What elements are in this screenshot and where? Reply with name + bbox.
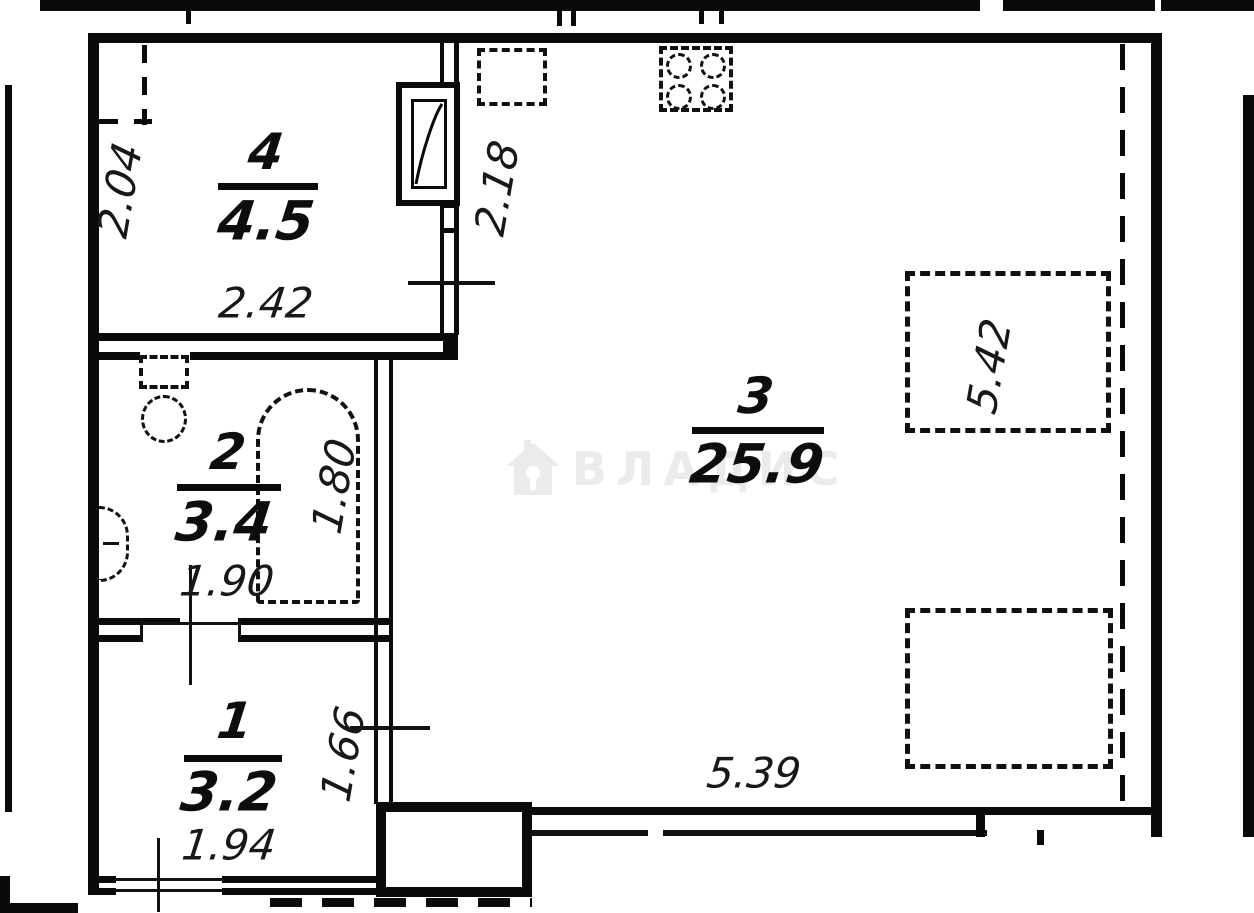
wall xyxy=(443,333,458,360)
room4-area: 4.5 xyxy=(214,190,317,253)
loggia-dashed-line xyxy=(1120,44,1125,802)
window xyxy=(530,807,1162,815)
room3-width-dim: 5.39 xyxy=(704,749,804,798)
wall xyxy=(88,352,140,360)
wall-tick xyxy=(186,11,191,24)
room3-wall-dim: 2.18 xyxy=(465,136,529,241)
window-mullion xyxy=(976,813,985,837)
wardrobe-icon xyxy=(142,45,147,125)
wall xyxy=(88,333,458,341)
top-wall xyxy=(88,33,1160,43)
entrance-door-opening xyxy=(114,889,224,892)
right-wall xyxy=(1151,33,1162,837)
wall-tick xyxy=(557,11,562,26)
room2-number: 2 xyxy=(207,423,249,481)
room3-area: 25.9 xyxy=(687,433,828,496)
burner-icon xyxy=(700,84,726,110)
window xyxy=(530,830,648,836)
outer-wall xyxy=(0,903,78,913)
wall-tick xyxy=(571,11,576,26)
wall xyxy=(88,888,116,895)
wall-tick xyxy=(699,11,704,24)
room1-depth-dim: 1.66 xyxy=(311,702,375,807)
toilet-icon xyxy=(139,355,189,389)
wall xyxy=(88,635,142,642)
dimension-line xyxy=(157,838,160,912)
shaft xyxy=(376,802,532,897)
burner-icon xyxy=(666,84,692,110)
room2-width-dim: 1.90 xyxy=(177,557,277,606)
wall xyxy=(190,352,458,360)
wall xyxy=(389,352,393,804)
stove-icon xyxy=(659,46,733,112)
door-jamb xyxy=(238,618,241,642)
furniture-icon xyxy=(905,608,1113,769)
left-wall xyxy=(88,33,99,890)
wall xyxy=(238,618,393,625)
wall-tick xyxy=(440,228,459,233)
electrical-panel-icon xyxy=(411,99,447,189)
wall-tick xyxy=(719,11,724,24)
outer-wall xyxy=(1243,95,1254,837)
room3-number: 3 xyxy=(735,367,777,425)
window-mullion xyxy=(1037,830,1044,845)
room2-area: 3.4 xyxy=(172,491,275,554)
kitchen-sink-icon xyxy=(477,48,547,106)
toilet-icon xyxy=(141,395,187,443)
wall xyxy=(238,635,393,642)
floor-plan: ВЛАДИС xyxy=(0,0,1254,913)
wall xyxy=(222,876,376,883)
boundary-dashed-line xyxy=(270,898,532,907)
wardrobe-icon xyxy=(96,119,152,124)
wall xyxy=(222,888,376,895)
washbasin-icon xyxy=(103,542,119,545)
outer-wall xyxy=(1161,0,1254,11)
burner-icon xyxy=(700,53,726,79)
room1-width-dim: 1.94 xyxy=(179,821,279,870)
outer-wall xyxy=(5,85,12,812)
entrance-door-opening xyxy=(114,878,224,881)
window xyxy=(663,830,987,836)
electrical-panel-icon xyxy=(396,82,460,206)
dimension-line xyxy=(408,281,495,285)
outer-wall xyxy=(1003,0,1155,11)
burner-icon xyxy=(666,53,692,79)
wall xyxy=(374,352,378,804)
door-jamb xyxy=(140,618,143,642)
watermark-house-icon xyxy=(504,440,562,498)
room4-width-dim: 2.42 xyxy=(216,279,316,328)
room4-number: 4 xyxy=(245,123,287,181)
room1-number: 1 xyxy=(214,692,256,750)
room1-area: 3.2 xyxy=(177,761,280,824)
wall xyxy=(88,876,116,883)
outer-wall xyxy=(40,0,980,11)
